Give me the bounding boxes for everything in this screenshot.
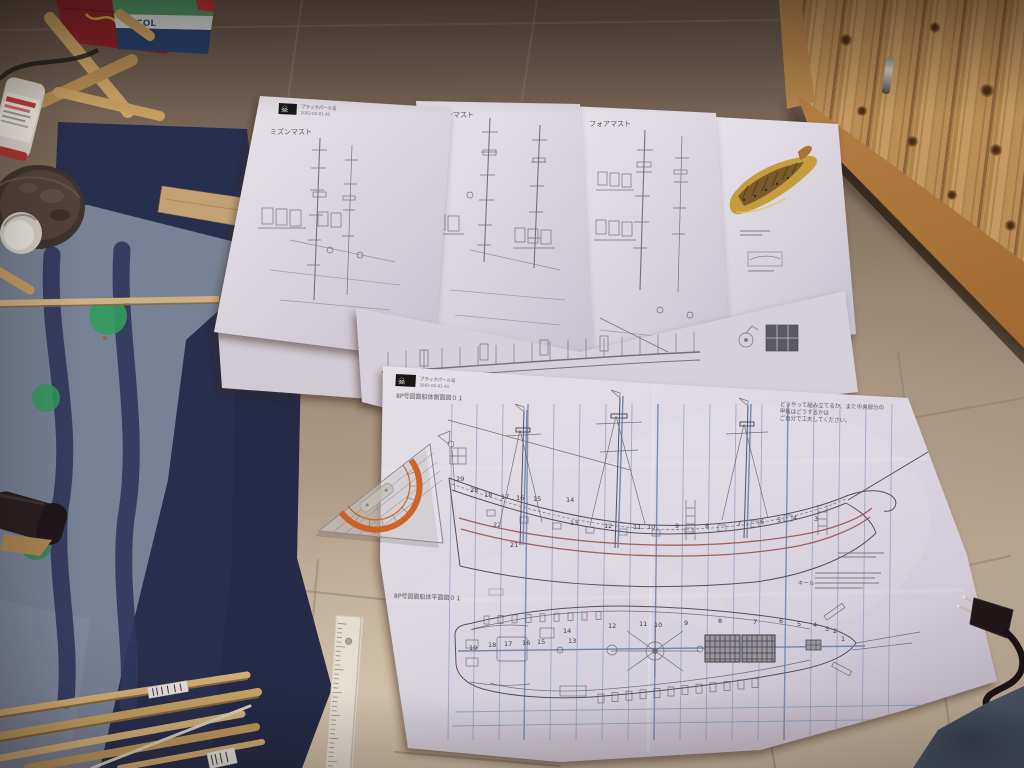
triangle-ruler xyxy=(315,444,443,548)
frame-label: 19 xyxy=(469,644,477,652)
frame-label: 3 xyxy=(825,625,829,633)
frame-label: 7 xyxy=(753,618,757,626)
frame-label: 5 xyxy=(777,516,781,524)
frame-label: 18 xyxy=(488,641,496,649)
frame-label: 12 xyxy=(604,522,612,530)
frame-label: 1 xyxy=(841,635,845,643)
frame-label: 14 xyxy=(566,496,574,504)
frame-label: 4 xyxy=(793,514,797,522)
frame-label: 17 xyxy=(501,493,509,501)
frame-label: 8 xyxy=(705,522,709,530)
ruler-hole xyxy=(345,638,352,645)
frame-label: 15 xyxy=(537,638,545,646)
white-ruler xyxy=(325,615,363,768)
frame-label: 4 xyxy=(813,621,817,629)
frame-label: 29 xyxy=(456,475,464,483)
fore-mast-title: フォアマスト xyxy=(589,120,631,128)
stern-grid-sketch xyxy=(766,325,798,351)
frame-label: 16 xyxy=(516,494,524,502)
frame-label: 28 xyxy=(470,486,478,494)
frame-label: 6 xyxy=(760,518,764,526)
frame-label: 17 xyxy=(504,640,512,648)
photo-scene: ECOL xyxy=(0,0,1024,768)
frame-label: 7 xyxy=(737,520,741,528)
frame-label: 16 xyxy=(522,639,530,647)
frame-label: 10 xyxy=(647,523,655,531)
frame-label: 15 xyxy=(533,495,541,503)
papers-svg: フォアマスト メインマスト xyxy=(0,0,1024,768)
skull-icon: ☠ xyxy=(397,377,406,387)
frame-label: 2 xyxy=(833,627,837,635)
frame-label: 18 xyxy=(484,491,492,499)
frame-label: 13 xyxy=(568,637,576,645)
frame-label: 6 xyxy=(779,617,783,625)
frame-label: 22 xyxy=(493,521,501,529)
frame-label: 9 xyxy=(675,522,679,530)
frame-label: 12 xyxy=(608,622,616,630)
frame-label: 3 xyxy=(814,515,818,523)
frame-label: 10 xyxy=(654,621,662,629)
mizzen-mast-title: ミズンマスト xyxy=(270,127,312,136)
skull-icon: ☠ xyxy=(280,105,289,115)
frame-label: 9 xyxy=(684,619,688,627)
frame-label: 8 xyxy=(718,617,722,625)
hull-sheet: 29 28 18 17 16 15 14 22 13 12 11 10 9 8 xyxy=(380,366,997,762)
frame-label: 13 xyxy=(570,519,578,527)
frame-label: 5 xyxy=(797,620,801,628)
frame-label: 21 xyxy=(510,541,518,549)
frame-label: 11 xyxy=(633,523,641,531)
keel-label: キール xyxy=(798,581,815,587)
frame-label: 14 xyxy=(563,627,571,635)
frame-label: 11 xyxy=(639,620,647,628)
